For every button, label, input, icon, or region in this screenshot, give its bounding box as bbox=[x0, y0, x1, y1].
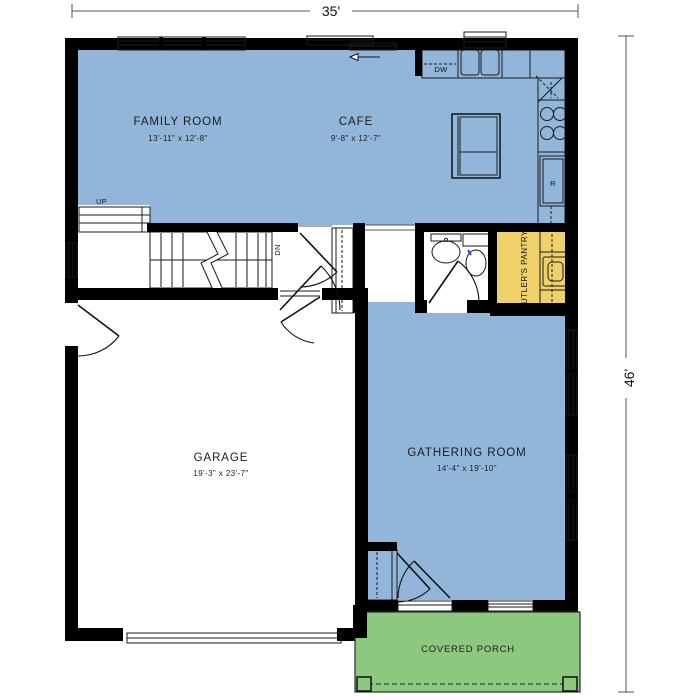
wall-gathering-bottom-2 bbox=[452, 600, 488, 612]
down-label: DN bbox=[273, 244, 282, 255]
family-room-size: 13'-11" x 12'-8" bbox=[148, 134, 207, 143]
gathering-room-size: 14'-4" x 19'-10" bbox=[437, 464, 497, 473]
stair-landing-fill bbox=[78, 205, 150, 227]
wall-right bbox=[565, 38, 578, 612]
cafe-size: 9'-8" x 12'-7" bbox=[331, 134, 381, 143]
powder-room bbox=[431, 234, 489, 276]
wall-stairs-top bbox=[147, 223, 298, 232]
floor-plan-canvas: R DW UP DN bbox=[0, 0, 700, 700]
refrigerator-label: R bbox=[550, 179, 556, 188]
wall-garage-right bbox=[355, 288, 368, 634]
gathering-room-name: GATHERING ROOM bbox=[407, 447, 526, 459]
dishwasher-label: DW bbox=[434, 65, 448, 74]
wall-kitchen-stub bbox=[415, 50, 422, 76]
wall-gathering-bottom-3 bbox=[533, 600, 578, 612]
bath-sink-icon bbox=[431, 234, 461, 263]
garage-name: GARAGE bbox=[194, 452, 249, 464]
wall-gathering-closet-top bbox=[355, 542, 397, 551]
covered-porch-name: COVERED PORCH bbox=[421, 644, 515, 655]
width-dimension-label: 35' bbox=[322, 3, 340, 19]
wall-bath-bottom-left bbox=[415, 300, 427, 313]
door-garage-entry bbox=[280, 288, 320, 343]
garage-size: 19'-3" x 23'-7" bbox=[193, 469, 248, 478]
butlers-pantry: BUTLER'S PANTRY bbox=[497, 230, 573, 310]
pantry-fill bbox=[497, 232, 565, 308]
hallway-fill bbox=[368, 232, 415, 302]
porch-wall-stub bbox=[353, 605, 367, 638]
wall-garage-top-left bbox=[65, 288, 278, 300]
wall-bath-right bbox=[488, 232, 497, 308]
butlers-pantry-label: BUTLER'S PANTRY bbox=[520, 230, 529, 310]
porch-post-right bbox=[563, 677, 577, 691]
cafe-name: CAFE bbox=[339, 116, 373, 128]
height-dimension-label: 46' bbox=[621, 369, 637, 387]
porch-post-left bbox=[357, 677, 371, 691]
dimension-right-line bbox=[618, 36, 634, 692]
wall-pantry-bottom bbox=[490, 303, 578, 316]
floor-plan-drawing: R DW UP DN bbox=[0, 0, 700, 700]
wall-bath-pantry-top bbox=[415, 223, 578, 232]
dimension-right: 46' bbox=[618, 36, 637, 692]
wall-bath-left bbox=[415, 232, 424, 308]
garage-door bbox=[127, 633, 341, 643]
window-gathering-bottom bbox=[488, 601, 533, 611]
dimension-top: 35' bbox=[72, 3, 578, 19]
family-room-name: FAMILY ROOM bbox=[134, 116, 223, 128]
wall-closet-right bbox=[353, 223, 365, 313]
kitchen-island bbox=[452, 114, 500, 178]
wall-garage-bottom-left bbox=[65, 628, 123, 641]
up-label: UP bbox=[96, 197, 107, 206]
